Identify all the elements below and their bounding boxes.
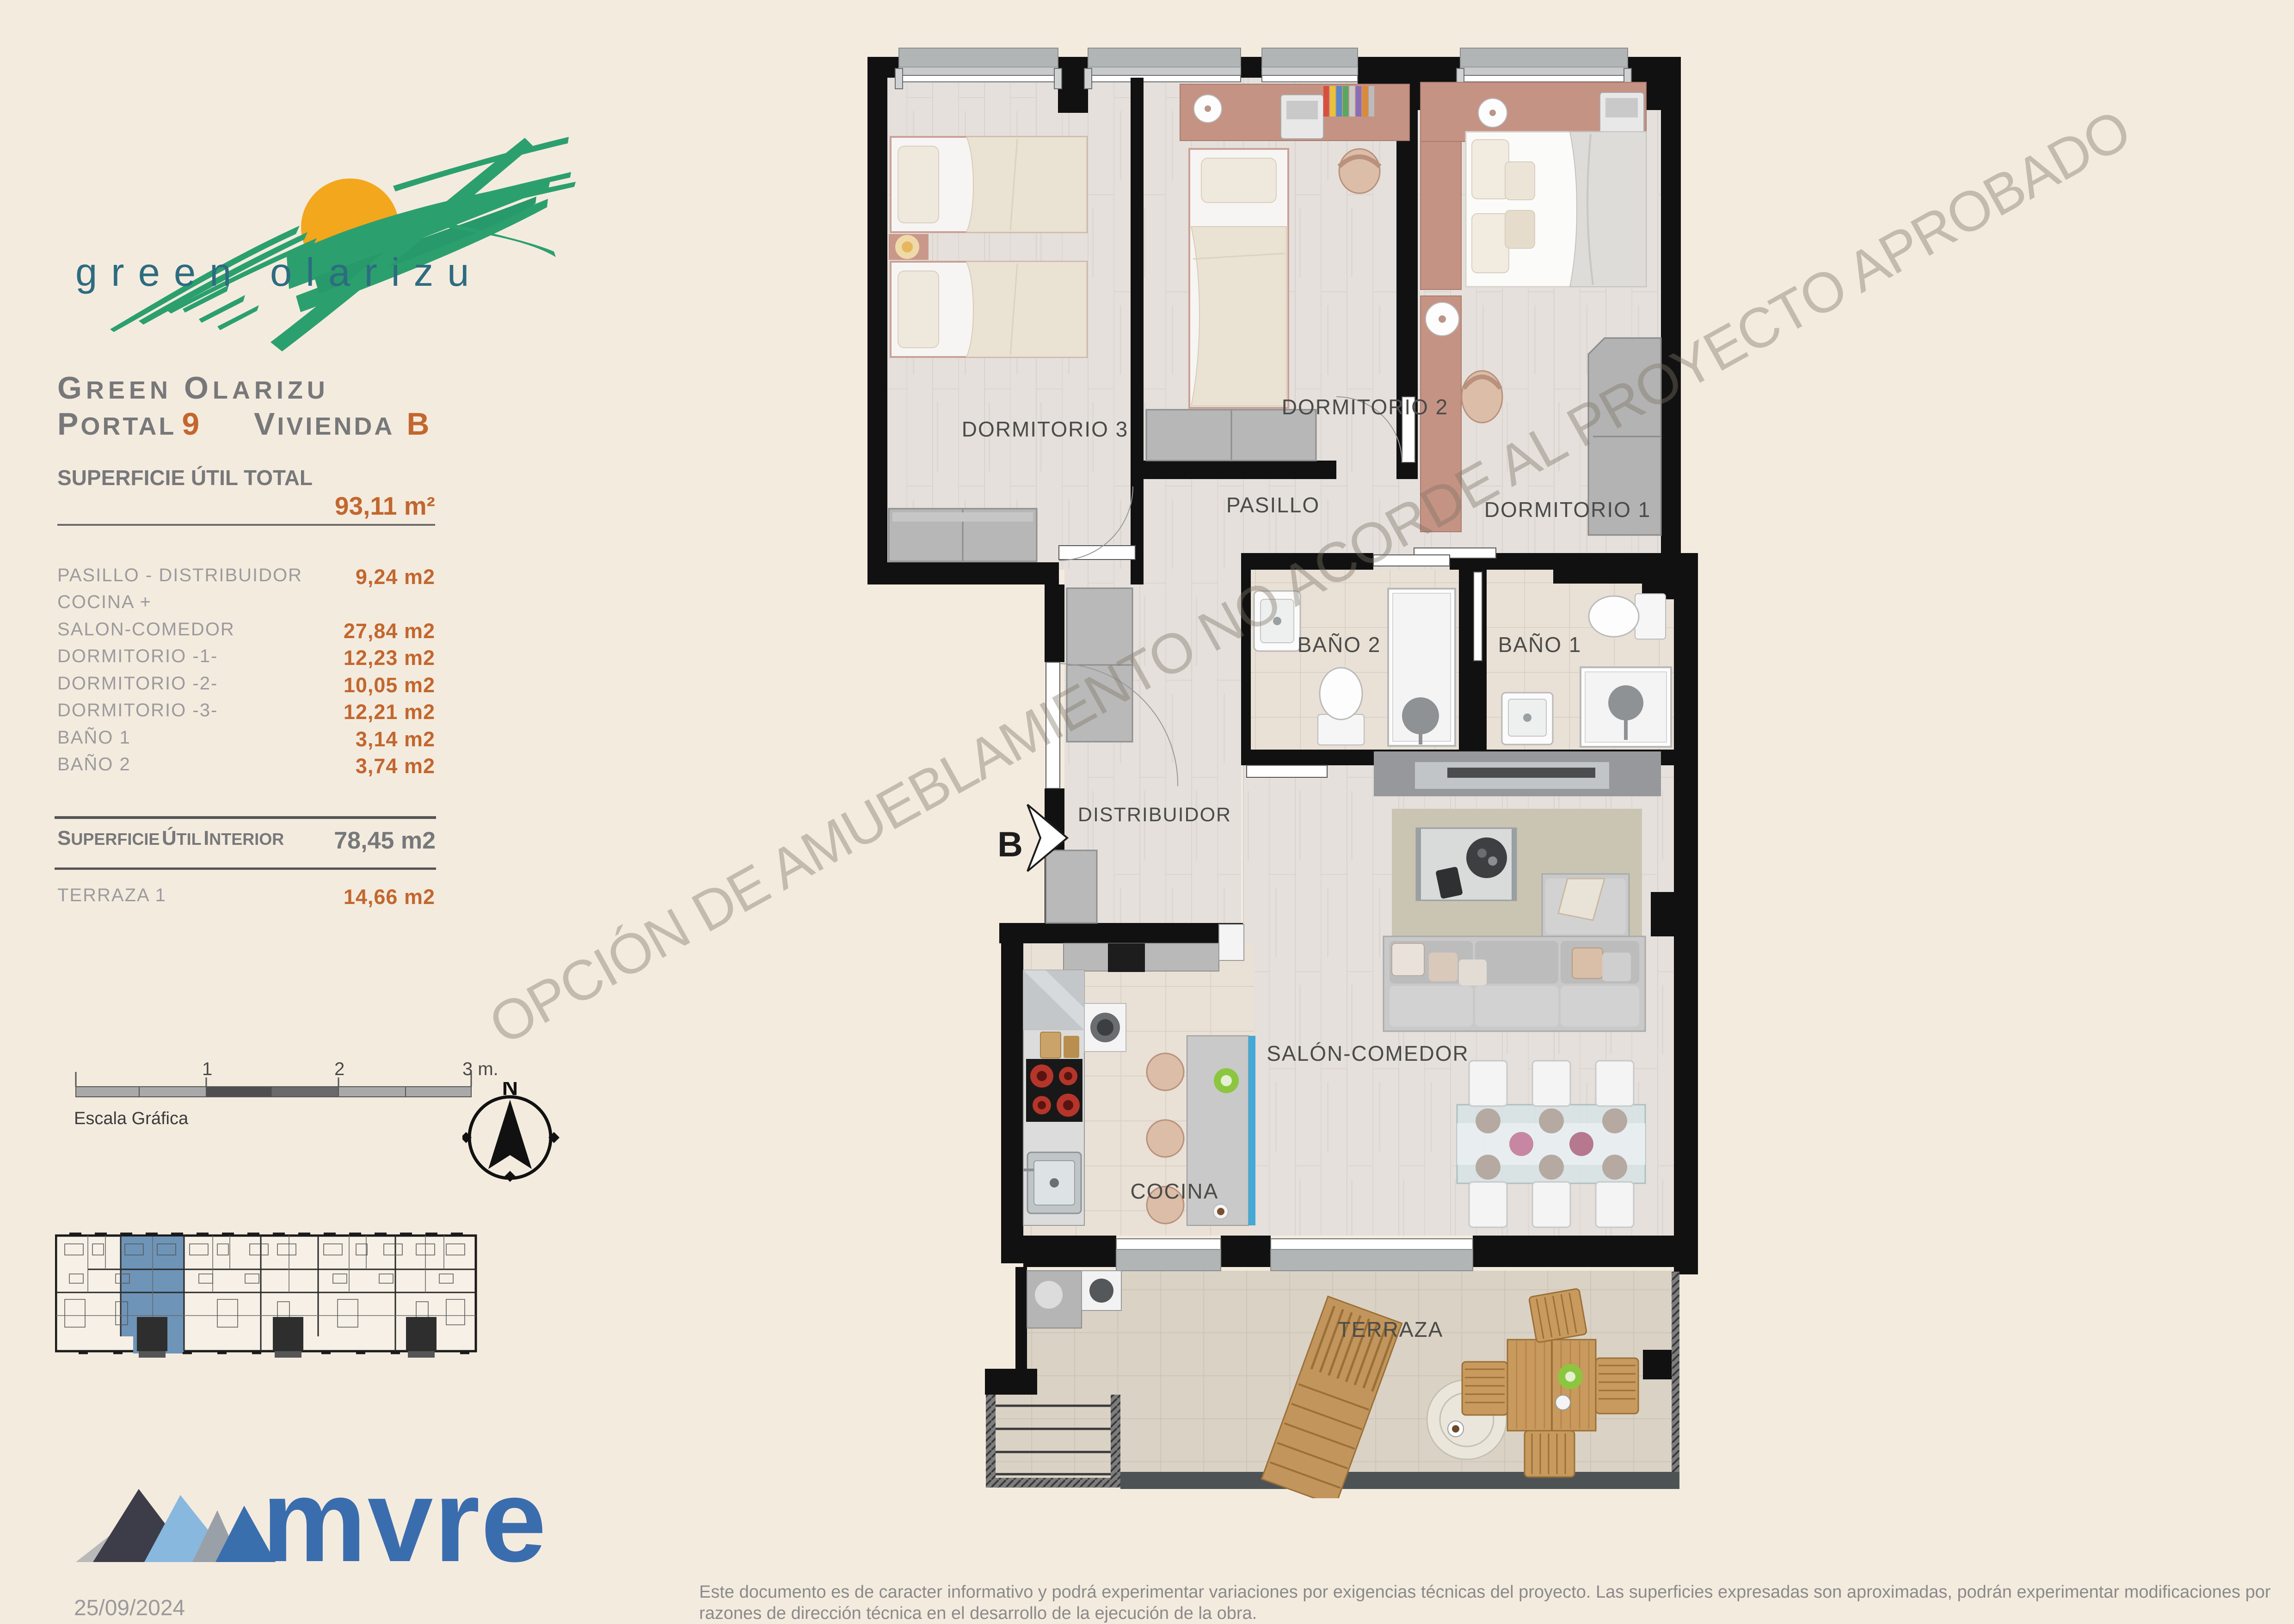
svg-text:DISTRIBUIDOR: DISTRIBUIDOR <box>1078 804 1231 826</box>
svg-text:B: B <box>997 825 1023 864</box>
svg-text:PASILLO: PASILLO <box>1226 493 1320 517</box>
svg-text:N: N <box>502 1082 518 1100</box>
svg-text:DORMITORIO 3: DORMITORIO 3 <box>962 417 1129 441</box>
svg-text:BAÑO 1: BAÑO 1 <box>1498 633 1582 657</box>
svg-text:DORMITORIO 2: DORMITORIO 2 <box>1282 395 1449 419</box>
svg-text:1: 1 <box>202 1059 212 1079</box>
svg-text:SALÓN-COMEDOR: SALÓN-COMEDOR <box>1267 1041 1469 1065</box>
svg-text:TERRAZA: TERRAZA <box>1338 1317 1444 1341</box>
svg-text:COCINA: COCINA <box>1131 1179 1219 1203</box>
svg-text:BAÑO 2: BAÑO 2 <box>1298 633 1381 657</box>
